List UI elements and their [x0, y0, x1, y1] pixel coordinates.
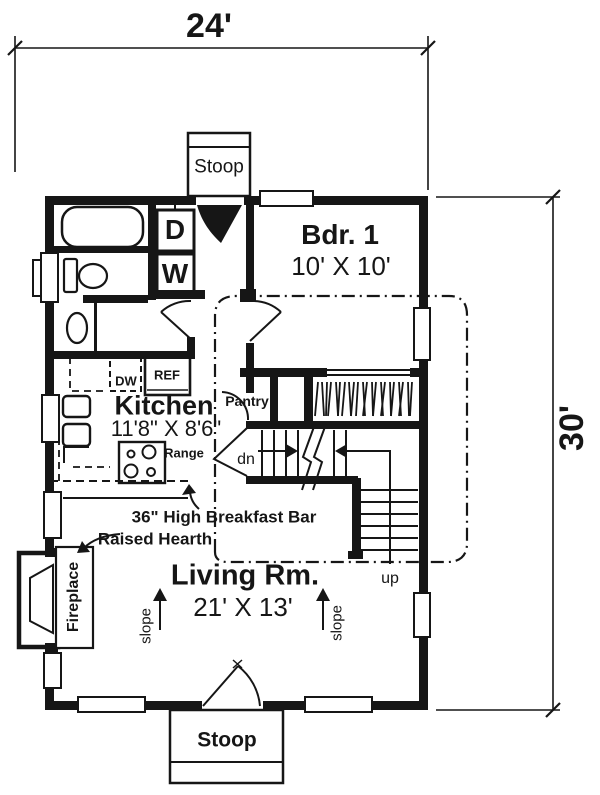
floor-plan: 24' 30' Stoop Stoop Bdr. 1 10' X 10' D W…	[0, 0, 600, 795]
bedroom-door-leaf	[250, 312, 281, 341]
bath-door-leaf	[161, 312, 193, 341]
bath-door-arc	[161, 301, 191, 312]
window-top	[260, 191, 313, 206]
window-bottom-1	[78, 697, 145, 712]
stair-door-swing	[214, 428, 247, 476]
firebox	[30, 565, 53, 633]
up-arrowhead	[335, 444, 347, 458]
pantry-door-arc	[222, 392, 248, 420]
floor-plan-drawing	[0, 0, 600, 795]
closet-header-lines	[327, 370, 410, 375]
range-box	[119, 442, 165, 483]
kitchen-fixtures	[50, 355, 190, 498]
refrigerator-box	[145, 355, 190, 395]
bathtub	[62, 207, 143, 247]
bottom-door-leaf	[203, 666, 238, 706]
laundry	[157, 196, 194, 295]
closet-hatch	[315, 382, 412, 416]
fireplace	[19, 547, 93, 652]
entry-door-leaf	[197, 205, 242, 243]
window-living-left	[44, 653, 61, 688]
stoop-bottom-outline	[170, 710, 283, 783]
down-arrowhead	[286, 444, 298, 458]
stoop-top-outline	[188, 133, 250, 196]
window-bath	[41, 253, 58, 302]
bath-fixtures	[62, 207, 143, 343]
dryer-box	[157, 210, 194, 251]
callout-arrows	[77, 484, 330, 630]
bath-sink	[67, 313, 87, 343]
window-bedroom	[414, 308, 430, 360]
dishwasher-box	[110, 357, 141, 391]
toilet-bowl	[79, 264, 107, 288]
window-kitchen-1	[42, 395, 59, 442]
breakfast-bar-arrow	[190, 492, 199, 509]
window-living-right	[414, 593, 430, 637]
bedroom-door-arc	[252, 301, 281, 312]
window-kitchen-2	[44, 492, 61, 538]
up-arrow	[342, 451, 390, 564]
window-bottom-2	[305, 697, 372, 712]
counter-corner	[64, 447, 89, 463]
toilet-tank	[64, 259, 77, 292]
sink-bowl-1	[63, 396, 90, 417]
stairs	[258, 424, 418, 564]
hearth	[56, 547, 93, 648]
bottom-door-arc	[238, 666, 260, 706]
washer-box	[157, 254, 194, 295]
sink-bowl-2	[63, 424, 90, 446]
interior-walls	[45, 196, 428, 559]
counter-dashed-dw	[70, 357, 108, 391]
